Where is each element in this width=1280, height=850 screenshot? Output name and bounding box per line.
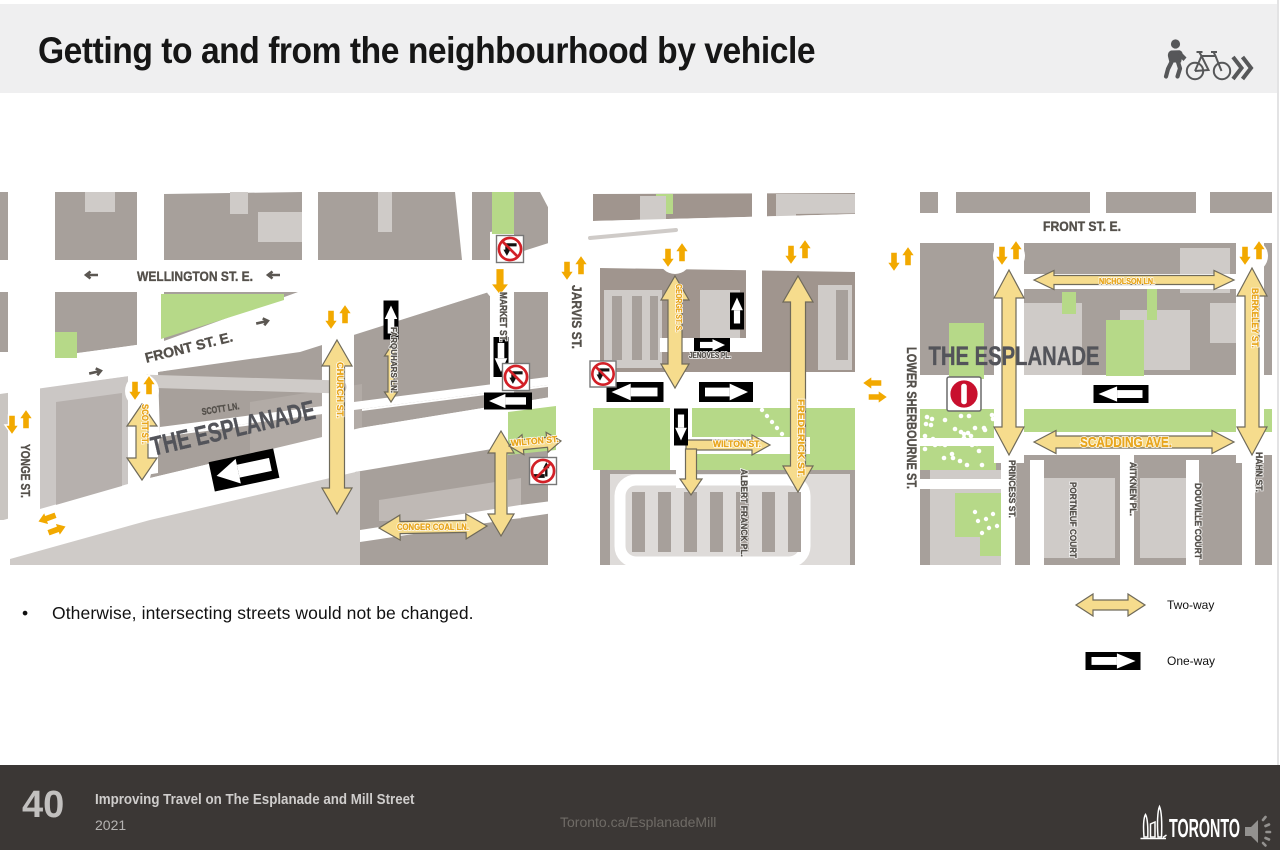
svg-text:TORONTO: TORONTO [1169,813,1240,843]
